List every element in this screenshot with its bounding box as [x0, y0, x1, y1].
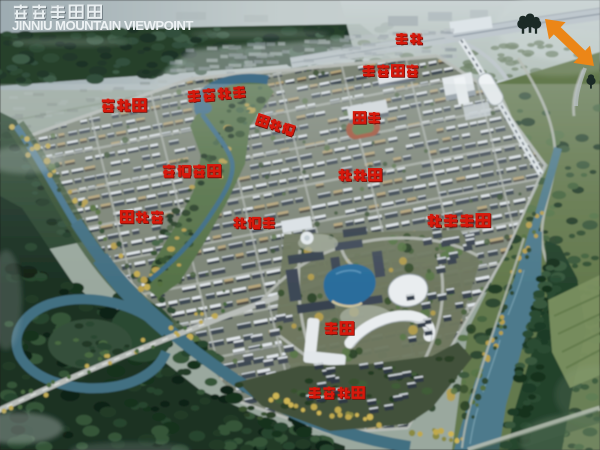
svg-text:JINNIU MOUNTAIN VIEWPOINT: JINNIU MOUNTAIN VIEWPOINT: [12, 18, 193, 33]
